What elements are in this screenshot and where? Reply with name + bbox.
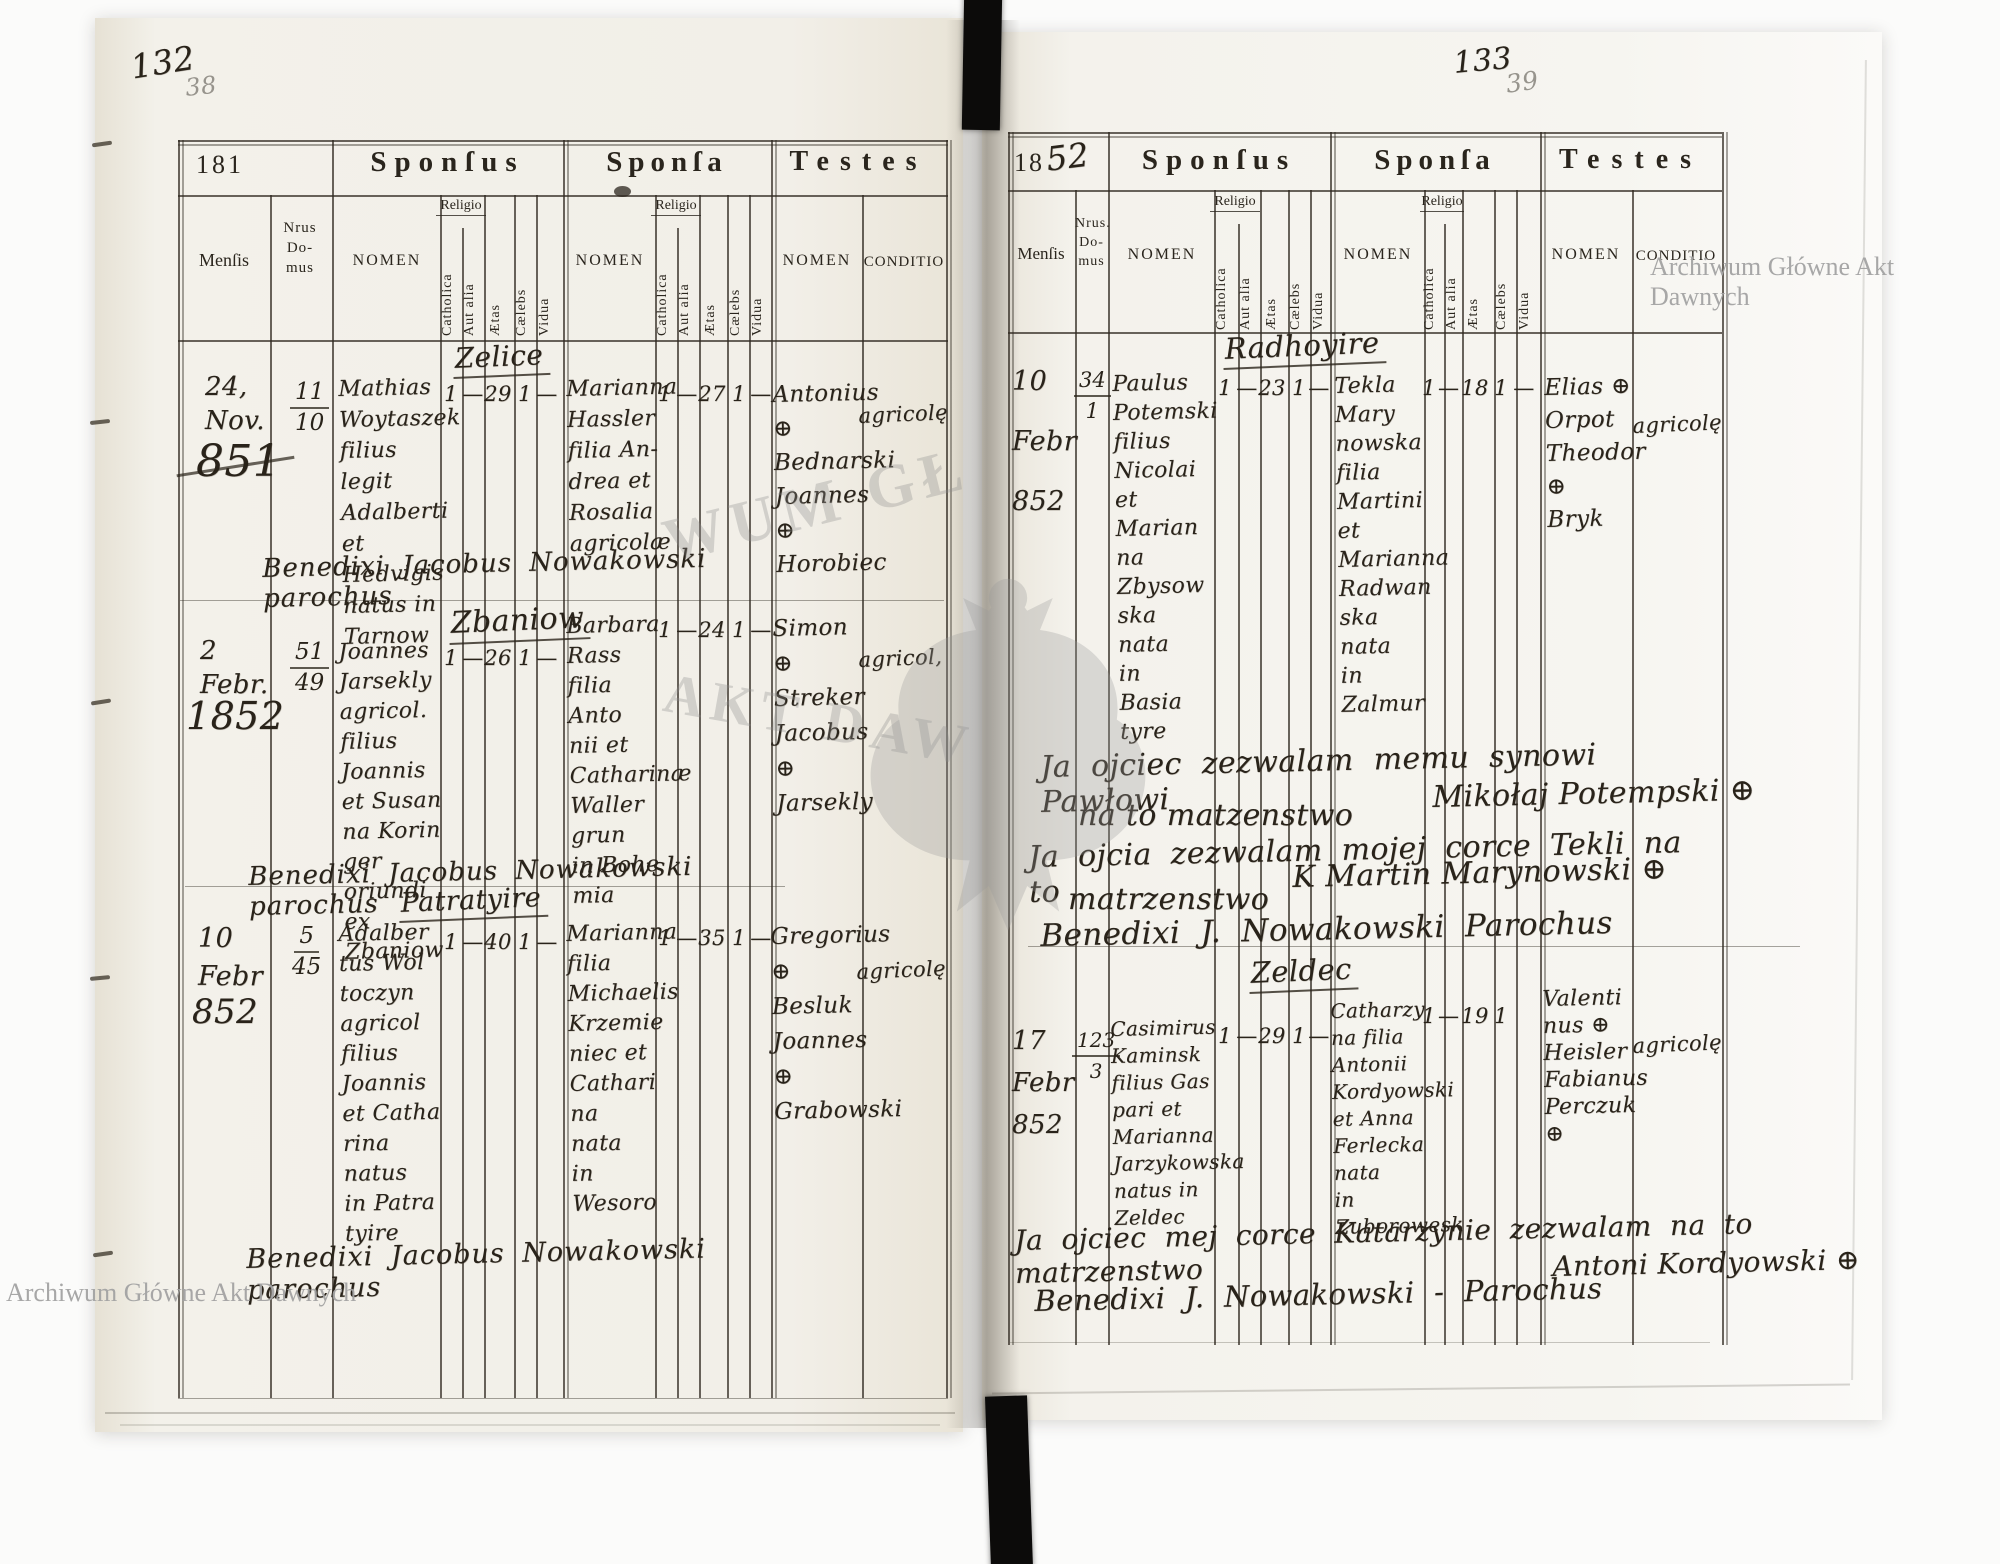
sponsus-section-header: Sponſus bbox=[1108, 144, 1330, 177]
scanned-marriage-register-spread: 132 38 133 39 181 Sponſus Sponſa Testes … bbox=[0, 0, 2000, 1564]
caelebs-header: Cælebs bbox=[1288, 222, 1304, 330]
witnesses-condition: agricolę bbox=[1632, 1030, 1722, 1058]
sponsa-name: Tekla Mary nowska filia Martini et Maria… bbox=[1334, 370, 1436, 720]
religio-catholica-value: 1 bbox=[1418, 1004, 1440, 1028]
year-header-right-printed: 18 bbox=[1014, 148, 1044, 178]
aetas-value: 19 bbox=[1458, 1004, 1492, 1028]
religio-sponsa-header: Religio bbox=[1420, 194, 1464, 212]
testes-section-header: Testes bbox=[1540, 144, 1722, 176]
caelebs-value: 1 bbox=[1490, 376, 1512, 400]
house-number: 34 1 bbox=[1074, 366, 1111, 426]
aetas-value: 23 bbox=[1256, 376, 1288, 400]
vidua-header: Vidua bbox=[1517, 222, 1533, 330]
witnesses-condition: agricolę bbox=[1632, 410, 1722, 438]
house-number-bottom: 3 bbox=[1090, 1057, 1103, 1086]
house-number-bottom: 1 bbox=[1086, 397, 1099, 426]
caelebs-header: Cælebs bbox=[1494, 222, 1510, 330]
aetas-header: Ætas bbox=[1264, 222, 1280, 330]
catholica-header: Catholica bbox=[1214, 222, 1230, 330]
house-number-top: 34 bbox=[1074, 366, 1111, 397]
aut-alia-header: Aut alia bbox=[1238, 222, 1254, 330]
religio-aut-alia-value: — bbox=[1438, 1004, 1458, 1028]
witnesses-names: Valenti nus ⊕ Heisler Fabianus Perczuk ⊕ bbox=[1542, 984, 1640, 1148]
catholica-header: Catholica bbox=[1422, 222, 1438, 330]
nomen-testes-header: NOMEN bbox=[1542, 246, 1630, 264]
caelebs-value: 1 bbox=[1490, 1004, 1512, 1028]
religio-aut-alia-value: — bbox=[1438, 376, 1458, 400]
aetas-value: 18 bbox=[1458, 376, 1492, 400]
entry-date: 17 Febr 852 bbox=[1012, 1020, 1075, 1146]
vidua-header: Vidua bbox=[1311, 222, 1327, 330]
religio-catholica-value: 1 bbox=[1418, 376, 1440, 400]
village-heading: Zeldec bbox=[1248, 951, 1358, 994]
watermark-text-top-right: Archiwum Główne Akt Dawnych bbox=[1650, 252, 2000, 312]
nrus-domus-column-header: Nrus. Do- mus bbox=[1075, 214, 1108, 271]
sponsa-section-header: Sponſa bbox=[1330, 144, 1540, 177]
religio-sponsus-header: Religio bbox=[1210, 194, 1260, 212]
vidua-value: — bbox=[1512, 376, 1536, 400]
aetas-header: Ætas bbox=[1466, 222, 1482, 330]
nomen-sponsa-header: NOMEN bbox=[1332, 246, 1424, 264]
vidua-value: — bbox=[1306, 376, 1332, 400]
nomen-sponsus-header: NOMEN bbox=[1110, 246, 1214, 264]
entry-date: 10 Febr 852 bbox=[1012, 352, 1077, 532]
aut-alia-header: Aut alia bbox=[1444, 222, 1460, 330]
witnesses-names: Elias ⊕ Orpot Theodor ⊕ Bryk bbox=[1544, 370, 1640, 537]
eagle-emblem-icon bbox=[848, 548, 1168, 1000]
mensis-column-header: Menſis bbox=[1008, 244, 1074, 264]
consent-signature: Mikołaj Potempski ⊕ bbox=[1432, 773, 1756, 815]
vidua-value: — bbox=[1306, 1024, 1332, 1048]
watermark-text-bottom-left: Archiwum Główne Akt Dawnych bbox=[6, 1278, 356, 1308]
aetas-value: 29 bbox=[1256, 1024, 1288, 1048]
village-heading: Radhoyire bbox=[1222, 325, 1386, 370]
sponsa-name: Catharzy na filia Antonii Kordyowski et … bbox=[1330, 996, 1435, 1241]
year-header-right-written: 52 bbox=[1044, 135, 1091, 179]
